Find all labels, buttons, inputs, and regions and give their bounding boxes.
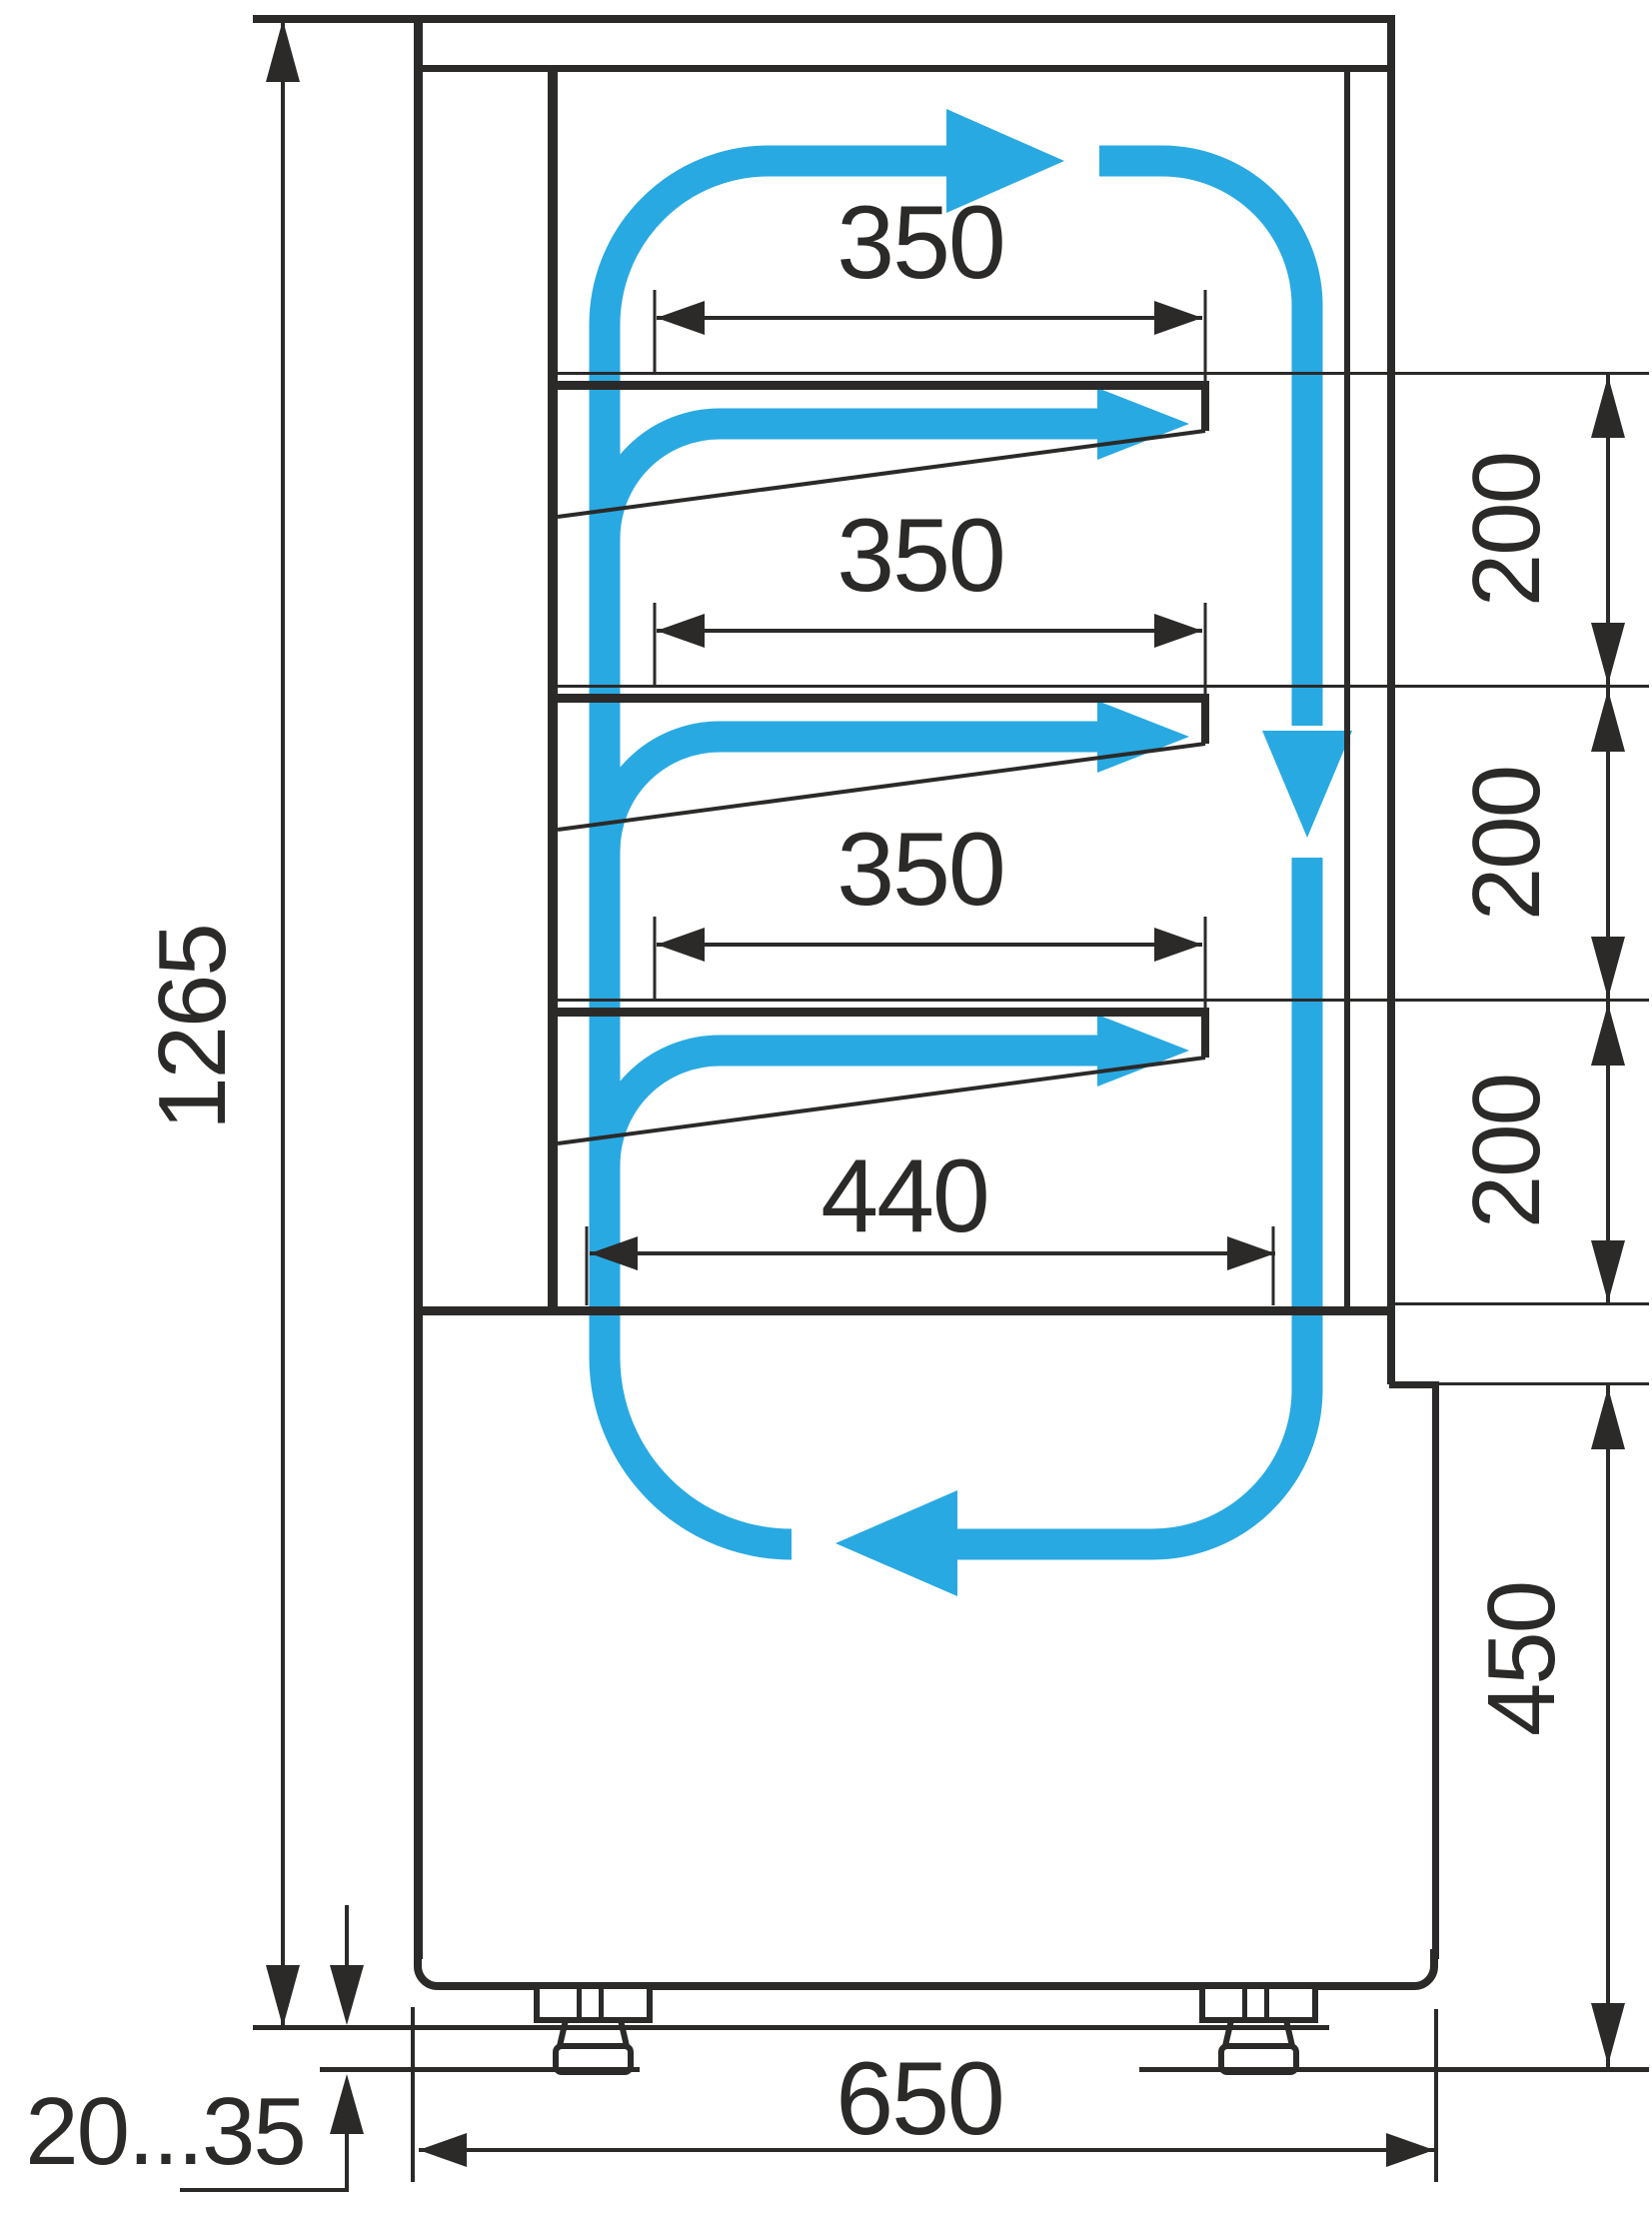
left-leg-cone <box>560 2020 627 2046</box>
left-leg-screw-b <box>599 1986 604 2020</box>
right-leg-plate <box>1202 1986 1315 2020</box>
airflow-down-arrow-icon <box>1262 731 1352 838</box>
dim-overall-height: 1265 <box>139 20 300 2027</box>
ext-deck-right <box>1395 1302 1649 1305</box>
dim-200-3-label: 200 <box>1453 1075 1560 1228</box>
dim-350-1-arrow-left-icon <box>657 301 705 335</box>
dim-1265-label: 1265 <box>139 925 246 1130</box>
left-leg-plate <box>537 1986 650 2020</box>
right-leg-screw-b <box>1264 1986 1269 2020</box>
shelf2-front-lip <box>1201 703 1209 744</box>
dim-440-label: 440 <box>821 1138 988 1254</box>
front-glass <box>1387 15 1395 1384</box>
dim-350-3-arrow-right-icon <box>1154 928 1202 962</box>
shelf3-front-lip <box>1201 1017 1209 1058</box>
shelf3-top-line <box>557 999 1649 1002</box>
shelf1-front-lip <box>1201 390 1209 431</box>
dim-350-3-arrow-left-icon <box>657 928 705 962</box>
right-leg-screw-a <box>1242 1986 1247 2020</box>
dim-200-1-arrow-up-icon <box>1591 376 1625 438</box>
left-leg-screw-a <box>577 1986 582 2020</box>
inner-ceiling <box>418 65 1392 72</box>
floor-line-lower-right <box>1139 2067 1649 2072</box>
dim-450-arrow-down-icon <box>1591 2003 1625 2065</box>
shelf1-top-line <box>557 372 1649 375</box>
air-duct-partition <box>548 68 558 1309</box>
base-bottom <box>418 1949 1434 1986</box>
dim-deck-width: 440 <box>587 1138 1275 1305</box>
shelf3 <box>557 1008 1209 1017</box>
dim-650-label: 650 <box>835 2041 1003 2157</box>
floor-line-lower-left <box>320 2067 640 2072</box>
dim-200-2-label: 200 <box>1453 767 1560 921</box>
dim-200-2-arrow-down-icon <box>1591 937 1625 999</box>
airflow-return-arrow-icon <box>835 1490 957 1596</box>
dim-650-arrow-right-icon <box>1386 2133 1434 2167</box>
dim-right-column: 200 200 200 450 <box>1453 374 1625 2067</box>
airflow-return-corner-path <box>605 1351 792 1544</box>
dim-shelf2-width: 350 <box>655 498 1205 694</box>
dim-450-arrow-up-icon <box>1591 1387 1625 1449</box>
dim-legs-label: 20...35 <box>25 2078 305 2185</box>
right-leg-cone <box>1225 2020 1292 2046</box>
airflow-branch3-arrow-icon <box>1097 1015 1189 1087</box>
display-case-section-drawing: 1265 350 350 350 <box>0 0 1652 2214</box>
front-ledge <box>1389 1381 1439 1388</box>
dim-350-1-label: 350 <box>836 185 1004 301</box>
shelf2-top-line <box>557 685 1649 688</box>
dim-350-2-arrow-left-icon <box>657 614 705 648</box>
dim-450-label: 450 <box>1468 1582 1575 1736</box>
dim-350-3-label: 350 <box>836 812 1004 928</box>
shelf1 <box>557 381 1209 390</box>
dim-legs-arrow-down-icon <box>330 1965 364 2025</box>
dim-350-2-arrow-right-icon <box>1154 614 1202 648</box>
front-glass-inner-line <box>1344 68 1350 1309</box>
dim-1265-arrow-down-icon <box>266 1965 300 2027</box>
dim-200-3-arrow-down-icon <box>1591 1240 1625 1302</box>
base-right-wall <box>1432 1384 1439 1959</box>
airflow-branch1-arrow-icon <box>1097 388 1189 460</box>
dim-shelf3-width: 350 <box>655 812 1205 1008</box>
airflow-base-return-path <box>957 858 1307 1544</box>
top-cap <box>253 15 1395 23</box>
dim-1265-arrow-up-icon <box>266 20 300 82</box>
dim-shelf1-width: 350 <box>655 185 1205 381</box>
airflow-branch2-arrow-icon <box>1097 701 1189 773</box>
dim-legs-arrow-up-icon <box>330 2074 364 2134</box>
dim-200-1-arrow-down-icon <box>1591 623 1625 685</box>
dim-leg-adjust: 20...35 <box>25 1905 364 2190</box>
shelf2 <box>557 694 1209 703</box>
dim-440-arrow-right-icon <box>1227 1236 1275 1270</box>
dim-350-2-label: 350 <box>836 498 1004 614</box>
left-wall <box>414 15 423 1959</box>
dim-200-3-arrow-up-icon <box>1591 1004 1625 1066</box>
bottom-deck <box>418 1306 1389 1315</box>
dim-650-arrow-left-icon <box>419 2133 467 2167</box>
ext-ledge-right <box>1439 1382 1649 1385</box>
dim-200-2-arrow-up-icon <box>1591 690 1625 752</box>
dim-200-1-label: 200 <box>1453 453 1560 607</box>
dim-350-1-arrow-right-icon <box>1154 301 1202 335</box>
